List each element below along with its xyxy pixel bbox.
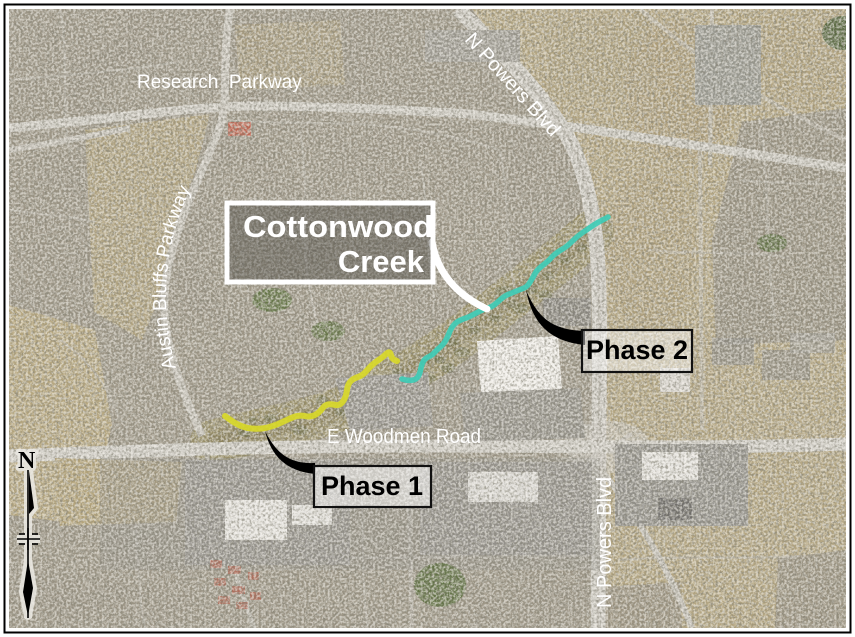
svg-text:Phase 2: Phase 2: [586, 335, 688, 365]
svg-text:E Woodmen Road: E Woodmen Road: [327, 426, 481, 448]
svg-text:Cottonwood: Cottonwood: [243, 209, 433, 244]
svg-text:N Powers Blvd: N Powers Blvd: [594, 477, 616, 608]
svg-text:N: N: [18, 448, 36, 474]
svg-text:Research Parkway: Research Parkway: [137, 72, 302, 93]
svg-text:Creek: Creek: [338, 244, 425, 279]
svg-text:Phase 1: Phase 1: [321, 471, 423, 501]
